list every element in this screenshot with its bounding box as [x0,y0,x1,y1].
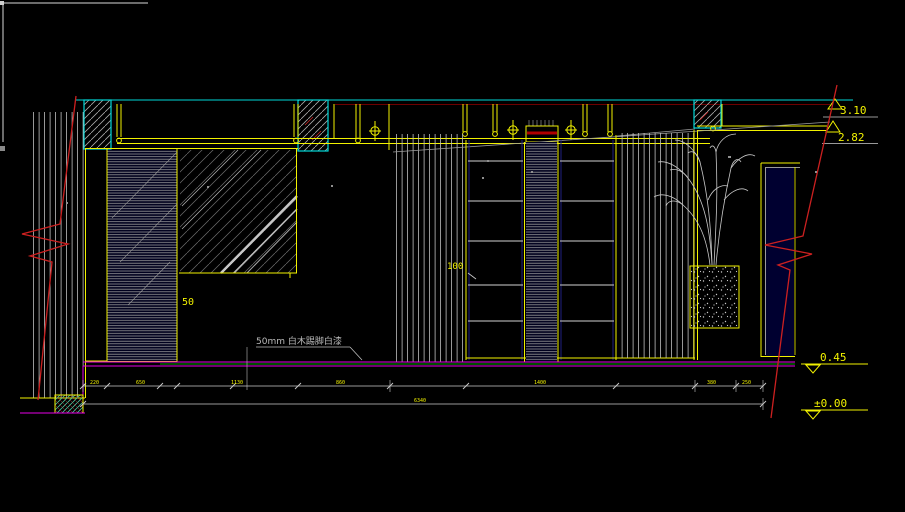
level-value: 0.45 [820,351,847,364]
dim-value: 250 [742,380,751,386]
dimension-line-row1: 220 650 1130 860 1400 380 250 [80,380,766,392]
level-value: 3.10 [840,104,867,117]
level-marker-soffit: 2.82 [822,121,878,144]
elevation-drawing: 50 100 [0,0,905,512]
material-note-text: 50mm 白木踢脚白漆 [256,335,342,347]
hatched-column-right [694,100,721,128]
dimension-line-total: 6340 [80,398,766,410]
slat-wall-right [620,133,694,358]
slat-wall-left [30,112,84,398]
slat-wall-middle [392,134,464,362]
level-marker-floor: ±0.00 [801,397,868,419]
planter-box [690,266,739,328]
dim-value: 650 [136,380,145,386]
gap-dimension-label: 50 [182,297,194,308]
ceiling-slab-line [75,100,853,105]
level-value: ±0.00 [814,397,847,410]
hatched-column-left [84,100,111,149]
depth-dimension-label: 100 [447,262,463,272]
dim-total-value: 6340 [414,398,426,404]
level-value: 2.82 [838,131,865,144]
floor-line [83,362,795,366]
mirror-panel [180,150,297,273]
dim-value: 860 [336,380,345,386]
dim-value: 1400 [534,380,546,386]
cad-canvas[interactable]: 50 100 [0,0,905,512]
slatted-column [526,142,557,362]
dim-value: 220 [90,380,99,386]
dim-value: 380 [707,380,716,386]
level-marker-sill: 0.45 [801,351,868,373]
striped-wood-panel [108,150,178,361]
dim-value: 1130 [231,380,243,386]
